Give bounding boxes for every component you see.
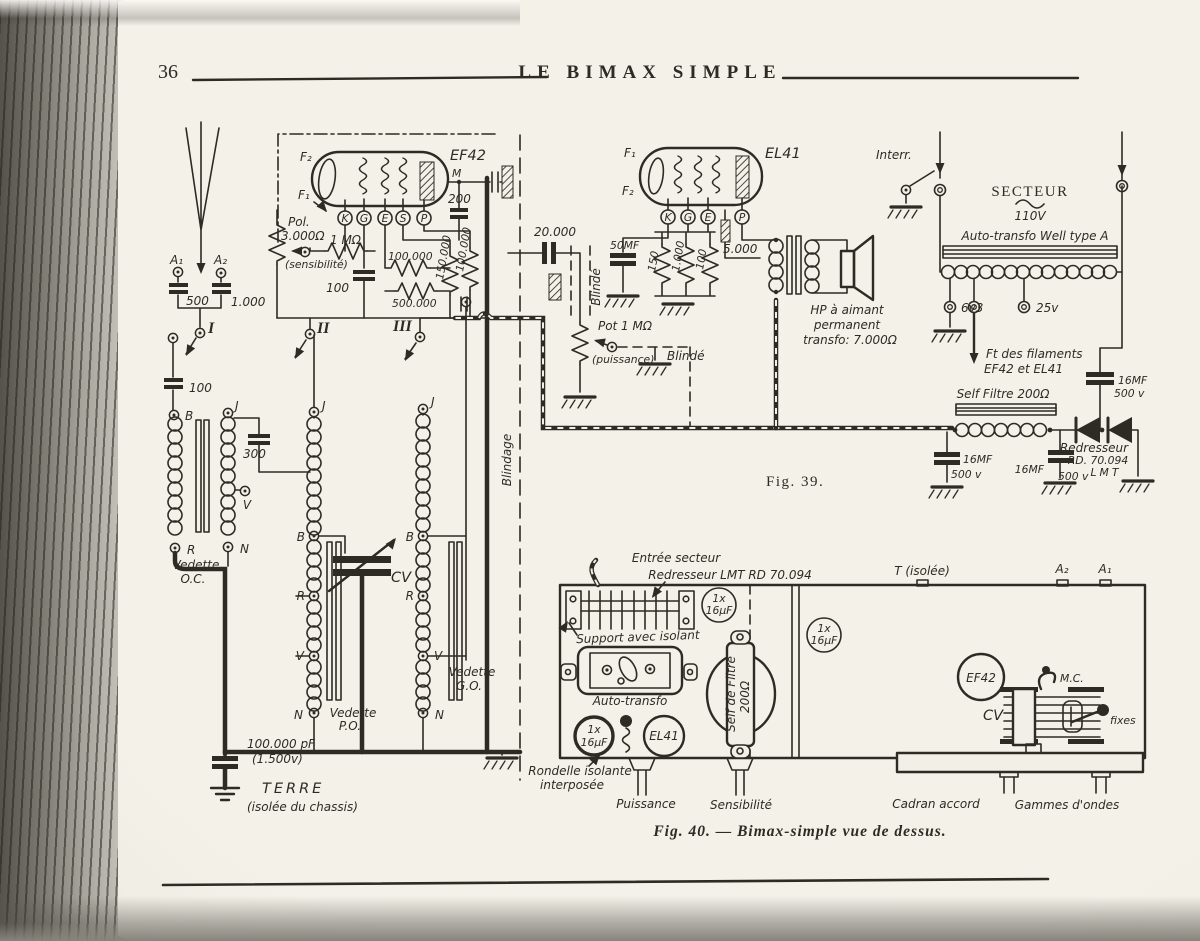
fig40-chassis-view: Entrée secteur Redresseur LMT RD 70.094 …	[528, 551, 1145, 840]
label-hp-2: permanent	[813, 318, 882, 332]
label-500v-c: 500 v	[1058, 470, 1089, 483]
label-ef42-f1: F₁	[298, 188, 310, 202]
schematic-scan-svg: 36 LE BIMAX SIMPLE A₁ A₂ 500 1.000 I II …	[0, 0, 1200, 941]
label-tap-B2: B	[297, 530, 305, 544]
label-support-isolant: Support avec isolant	[576, 628, 701, 646]
grounding-bolt-spring	[620, 715, 632, 752]
label-cadran-accord: Cadran accord	[892, 797, 980, 811]
label-16uf-c: 16μF	[811, 634, 839, 647]
label-100000pf: 100.000 pF	[247, 737, 316, 751]
cv-gang-top-view: M.C. fixes CV	[983, 666, 1136, 753]
label-ef42-S: S	[400, 212, 407, 225]
antenna-input-caps: A₁ A₂ 500 1.000	[169, 253, 266, 327]
self-filtre-top-view: Self de Filtre 200Ω	[707, 631, 775, 758]
ef42-stage: F₂ F₁ EF42 K G E S P M 200	[278, 134, 513, 242]
label-hp-1: HP à aimant	[810, 303, 885, 317]
label-el41-K: K	[664, 211, 672, 224]
page-bottom-shadow	[0, 896, 1200, 941]
label-tap-R1: R	[187, 543, 195, 557]
label-tap-N1: N	[240, 542, 249, 556]
label-16mf-c: 16MF	[1015, 463, 1045, 476]
label-cv-40: CV	[983, 708, 1004, 724]
label-vedette-po-2: P.O.	[339, 719, 361, 733]
auto-transfo-top-view: Auto-transfo	[561, 647, 697, 708]
label-blindage: Blindage	[500, 434, 514, 486]
label-cv: CV	[391, 570, 412, 586]
label-3000: 3.000Ω	[281, 229, 325, 243]
label-hp-3: transfo: 7.000Ω	[803, 333, 898, 347]
label-redresseur-lmt: Redresseur LMT RD 70.094	[648, 568, 811, 582]
page-number: 36	[158, 61, 178, 83]
label-a2: A₂	[213, 253, 227, 267]
label-ef42-40: EF42	[966, 671, 996, 685]
label-1000-el41: 1.000	[669, 240, 687, 273]
label-auto-transfo-40: Auto-transfo	[592, 694, 668, 708]
label-16mf-a: 16MF	[1118, 374, 1148, 387]
label-ef42: EF42	[450, 148, 486, 164]
label-300: 300	[243, 447, 266, 461]
coupling-network: 20.000 Blindé	[508, 225, 603, 322]
antenna	[186, 122, 219, 274]
page-title: LE BIMAX SIMPLE	[518, 62, 781, 83]
coil-assembly-oc: 100 B R J N V 300 Vedette O.C.	[164, 333, 310, 752]
entree-secteur-cable: Entrée secteur Redresseur LMT RD 70.094	[592, 551, 812, 601]
label-16uf-a: 16μF	[706, 604, 734, 617]
label-tap-V1: V	[243, 498, 252, 512]
label-gammes-ondes: Gammes d'ondes	[1015, 798, 1120, 812]
label-1x-b: 1x	[587, 723, 601, 736]
filament-taps: 6v3 Ft des filaments EF42 et EL41 25v	[932, 279, 1083, 376]
label-self-de-filtre: Self de Filtre	[724, 656, 738, 732]
label-el41-E: E	[705, 211, 712, 224]
scanned-book-page: 36 LE BIMAX SIMPLE A₁ A₂ 500 1.000 I II …	[0, 0, 1200, 941]
label-tap-J3: J	[429, 395, 435, 409]
label-500k: 500.000	[392, 297, 437, 310]
label-tap-N2: N	[294, 708, 303, 722]
label-25v: 25v	[1036, 301, 1059, 315]
label-50mf: 50MF	[610, 239, 640, 252]
wave-selector-switches: I II III	[182, 318, 425, 363]
label-pol: Pol.	[288, 215, 310, 229]
label-el41-G: G	[684, 211, 692, 224]
label-pot1meg: Pot 1 MΩ	[598, 319, 653, 333]
label-self-filtre: Self Filtre 200Ω	[957, 387, 1051, 401]
label-500: 500	[186, 294, 209, 308]
label-blinde-2: Blindé	[667, 349, 705, 363]
label-5000: 5.000	[723, 242, 758, 256]
chassis-divider-double	[792, 585, 799, 758]
label-rondelle-2: interposée	[540, 778, 604, 792]
header-rule-left	[193, 77, 547, 80]
label-tap-B1: B	[185, 409, 193, 423]
label-100-cath: 100	[326, 281, 349, 295]
mains-section: Interr. SECTEUR 110V Auto-transfo Well t…	[876, 132, 1148, 430]
label-auto-transfo-well: Auto-transfo Well type A	[961, 229, 1109, 243]
antenna-arrow	[197, 263, 206, 274]
label-tap-J2: J	[320, 399, 326, 413]
el41-anode-plate	[736, 156, 749, 198]
fig40-caption: Fig. 40. — Bimax-simple vue de dessus.	[652, 823, 946, 840]
label-m: M	[452, 167, 462, 180]
label-20000: 20.000	[534, 225, 576, 239]
rectifier-fins	[566, 591, 694, 629]
el41-socket: EL41	[644, 716, 684, 756]
label-el41-f2: F₂	[622, 184, 634, 198]
label-tap-R3: R	[406, 589, 414, 603]
label-16mf-b: 16MF	[963, 453, 993, 466]
ef42-anode-plate	[420, 162, 434, 200]
output-transformer-speaker: HP à aimant permanent transfo: 7.000Ω	[742, 224, 898, 347]
label-ef42-E: E	[382, 212, 389, 225]
capacitor-16mf-bold: 1x 16μF	[575, 717, 613, 755]
label-el41-f1: F₁	[624, 146, 636, 160]
label-el41-P: P	[739, 211, 746, 224]
label-el41: EL41	[765, 146, 801, 162]
label-mc: M.C.	[1060, 672, 1084, 685]
terre-earth: 100.000 pF (1.500v) TERRE (isolée du cha…	[211, 737, 358, 814]
label-vedette-po-1: Vedette	[330, 706, 377, 720]
front-controls: Puissance Sensibilité Cadran accord Gamm…	[616, 753, 1143, 812]
label-ef42-f2: F₂	[300, 150, 312, 164]
label-self-200: 200Ω	[738, 680, 752, 713]
chassis-top-terminals: T (isolée) A₂ A₁	[894, 562, 1111, 586]
label-1500v: (1.500v)	[252, 752, 303, 766]
label-16uf-b: 16μF	[581, 736, 609, 749]
label-sensibilite: Sensibilité	[710, 798, 772, 812]
label-tap-B3: B	[406, 530, 414, 544]
label-puissance: Puissance	[616, 797, 676, 811]
label-rondelle-1: Rondelle isolante	[528, 764, 631, 778]
label-1000: 1.000	[231, 295, 266, 309]
label-tap-N3: N	[435, 708, 444, 722]
label-110v: 110V	[1014, 209, 1046, 223]
capacitor-16mf-right: 1x 16μF	[807, 618, 841, 652]
label-filaments-2: EF42 et EL41	[984, 362, 1063, 376]
label-100-ant: 100	[189, 381, 212, 395]
puissance-pot: Pot 1 MΩ (puissance) Blindé	[562, 319, 705, 428]
capacitor-16mf-topleft: 1x 16μF	[702, 588, 736, 622]
label-terre-sub: (isolée du chassis)	[247, 800, 358, 814]
label-tap-J1: J	[233, 399, 239, 413]
fig39-caption: Fig. 39.	[766, 474, 824, 490]
fig39-schematic: A₁ A₂ 500 1.000 I II III 100 B R J	[164, 122, 1153, 814]
coil-assembly-go: J B R V N Vedette G.O.	[406, 297, 496, 752]
label-lmt: LMT	[1091, 466, 1122, 479]
label-t-isolee: T (isolée)	[894, 564, 950, 578]
label-vedette-go-2: G.O.	[456, 679, 482, 693]
label-filaments-1: Ft des filaments	[986, 347, 1083, 361]
label-fixes: fixes	[1110, 714, 1136, 727]
label-100-el41: 100	[693, 248, 709, 271]
label-switch-II: II	[316, 320, 330, 337]
label-switch-I: I	[207, 320, 215, 337]
label-interr: Interr.	[876, 148, 912, 162]
label-a1: A₁	[169, 253, 183, 267]
ef42-socket: EF42	[958, 654, 1004, 700]
label-ef42-G: G	[360, 212, 368, 225]
label-a2-40: A₂	[1054, 562, 1068, 576]
label-ef42-P: P	[421, 212, 428, 225]
label-a1-40: A₁	[1097, 562, 1111, 576]
label-blinde: Blindé	[589, 268, 603, 306]
label-ef42-K: K	[341, 212, 349, 225]
label-vedette-oc-2: O.C.	[181, 572, 206, 586]
label-500v-b: 500 v	[951, 468, 982, 481]
filter-rectifier: Self Filtre 200Ω Redresseur RD. 70.094 L…	[929, 387, 1153, 498]
label-secteur: SECTEUR	[991, 184, 1068, 200]
label-entree-secteur: Entrée secteur	[632, 551, 721, 565]
label-switch-III: III	[392, 318, 412, 335]
label-el41-40: EL41	[649, 729, 679, 743]
footer-rule	[163, 879, 1048, 885]
label-sensibilite: (sensibilité)	[285, 258, 348, 271]
label-500v-a: 500 v	[1114, 387, 1145, 400]
label-terre: TERRE	[262, 781, 324, 797]
ef42-resistor-network: 100.000 150.000 100.000 500.000	[385, 225, 478, 318]
